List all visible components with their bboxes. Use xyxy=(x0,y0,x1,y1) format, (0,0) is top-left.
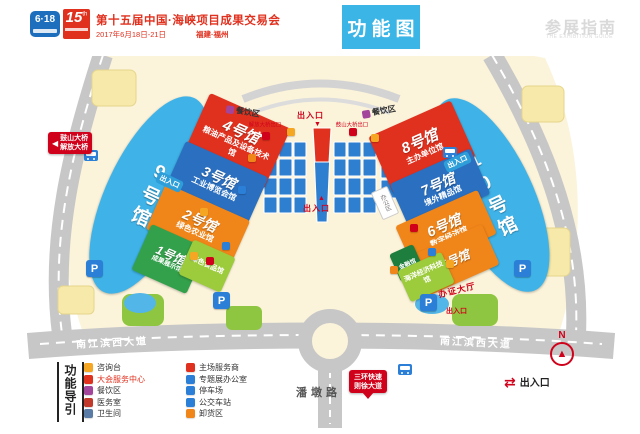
facility-icon xyxy=(200,208,208,216)
618-logo-bar xyxy=(33,29,57,33)
page-title: 功能图 xyxy=(340,3,422,51)
info-desk-icon xyxy=(84,363,93,372)
legend-column-2: 主场服务商 专题展办公室 停车场 公交车站 卸货区 xyxy=(186,363,247,418)
legend-column-1: 咨询台 大会服务中心 餐饮区 医务室 卫生间 xyxy=(84,363,145,418)
road-name-bottom: 潘墩路 xyxy=(296,384,341,400)
facility-icon xyxy=(262,132,270,140)
bridge-sign-line2: 解放大桥 xyxy=(60,143,88,152)
exhibition-function-map: 6·18 15th 第十五届中国·海峡项目成果交易会 2017年6月18日-21… xyxy=(0,0,640,434)
bridge-direction-sign: ◀ 鼓山大桥 解放大桥 xyxy=(48,132,92,154)
parking-marker: P xyxy=(86,260,103,277)
restroom-icon xyxy=(84,409,93,418)
facility-icon xyxy=(446,260,454,268)
parking-icon xyxy=(186,386,195,395)
legend-title: 功能导引 xyxy=(57,362,84,422)
event-date: 2017年6月18日-21日 xyxy=(96,29,166,40)
medical-room-icon xyxy=(84,398,93,407)
venue-service-icon xyxy=(186,363,195,372)
15th-logo-bar xyxy=(65,28,88,31)
guide-title-en: THE EXHIBITION GUIDE xyxy=(546,34,613,40)
dining-icon xyxy=(84,386,93,395)
entrance-top-label: 出入口 xyxy=(297,110,324,121)
facility-icon xyxy=(222,242,230,250)
exit-arrows-icon: ⇄ xyxy=(504,375,516,389)
exit-entrance-legend: ⇄ 出入口 xyxy=(504,374,550,389)
legend-item: 卸货区 xyxy=(186,409,247,418)
expressway-sign-line1: 三环快速 xyxy=(354,373,382,382)
compass-north-label: N xyxy=(546,330,578,341)
entrance-top-arrow: ▼ xyxy=(314,121,321,128)
exit-legend-label: 出入口 xyxy=(520,374,550,389)
legend-item: 专题展办公室 xyxy=(186,375,247,384)
unloading-area-icon xyxy=(186,409,195,418)
dining-icon xyxy=(362,109,371,118)
legend-item: 公交车站 xyxy=(186,398,247,407)
facility-icon xyxy=(371,134,379,142)
compass-needle-icon: ▲ xyxy=(557,348,568,360)
header: 6·18 15th 第十五届中国·海峡项目成果交易会 2017年6月18日-21… xyxy=(0,0,640,56)
bridge-sign-line1: 鼓山大桥 xyxy=(60,134,88,143)
parking-marker: P xyxy=(420,294,437,311)
dining-icon xyxy=(226,105,235,114)
15th-logo-sup: th xyxy=(82,12,87,18)
exit-note-right: 鼓山大桥出口 xyxy=(336,120,368,128)
facility-icon xyxy=(390,266,398,274)
bus-stop-icon xyxy=(398,364,412,375)
facility-icon xyxy=(190,252,198,260)
compass-ring: ▲ xyxy=(550,342,574,366)
facility-icon xyxy=(410,224,418,232)
legend-item: 主场服务商 xyxy=(186,363,247,372)
legend-item: 餐饮区 xyxy=(84,386,145,395)
facility-icon xyxy=(287,128,295,136)
parking-marker: P xyxy=(514,260,531,277)
expressway-sign-line2: 则徐大道 xyxy=(354,382,382,391)
618-logo: 6·18 xyxy=(30,11,60,37)
legend-item: 医务室 xyxy=(84,398,145,407)
facility-icon xyxy=(248,154,256,162)
facility-icon xyxy=(428,248,436,256)
entrance-bottom-arrow: ▲ xyxy=(318,195,325,202)
roundabout xyxy=(305,316,355,366)
15th-logo-number: 15 xyxy=(66,9,83,26)
certificate-hall-exit: 出入口 xyxy=(446,306,467,316)
legend-item: 咨询台 xyxy=(84,363,145,372)
central-spine-top xyxy=(313,128,331,162)
pond xyxy=(124,293,156,313)
exhibition-office-icon xyxy=(186,375,195,384)
legend-item: 卫生间 xyxy=(84,409,145,418)
event-location: 福建·福州 xyxy=(196,29,229,40)
entrance-bottom-label: 出入口 xyxy=(303,203,330,214)
facility-icon xyxy=(238,186,246,194)
office-label: 办公区 xyxy=(377,193,393,213)
618-logo-text: 6·18 xyxy=(35,14,55,25)
left-arrow-icon: ◀ xyxy=(52,139,58,148)
service-center-icon xyxy=(84,375,93,384)
parking-marker: P xyxy=(213,292,230,309)
15th-logo: 15th xyxy=(63,9,90,39)
exit-note-left: 解放大桥出口 xyxy=(249,120,281,128)
expressway-direction-sign: 三环快速 则徐大道 xyxy=(349,370,387,393)
compass: N ▲ xyxy=(546,330,578,366)
legend-item: 停车场 xyxy=(186,386,247,395)
facility-icon xyxy=(206,257,214,265)
facility-icon xyxy=(349,128,357,136)
event-title: 第十五届中国·海峡项目成果交易会 xyxy=(96,12,280,28)
bus-station-icon xyxy=(186,398,195,407)
legend-item: 大会服务中心 xyxy=(84,375,145,384)
